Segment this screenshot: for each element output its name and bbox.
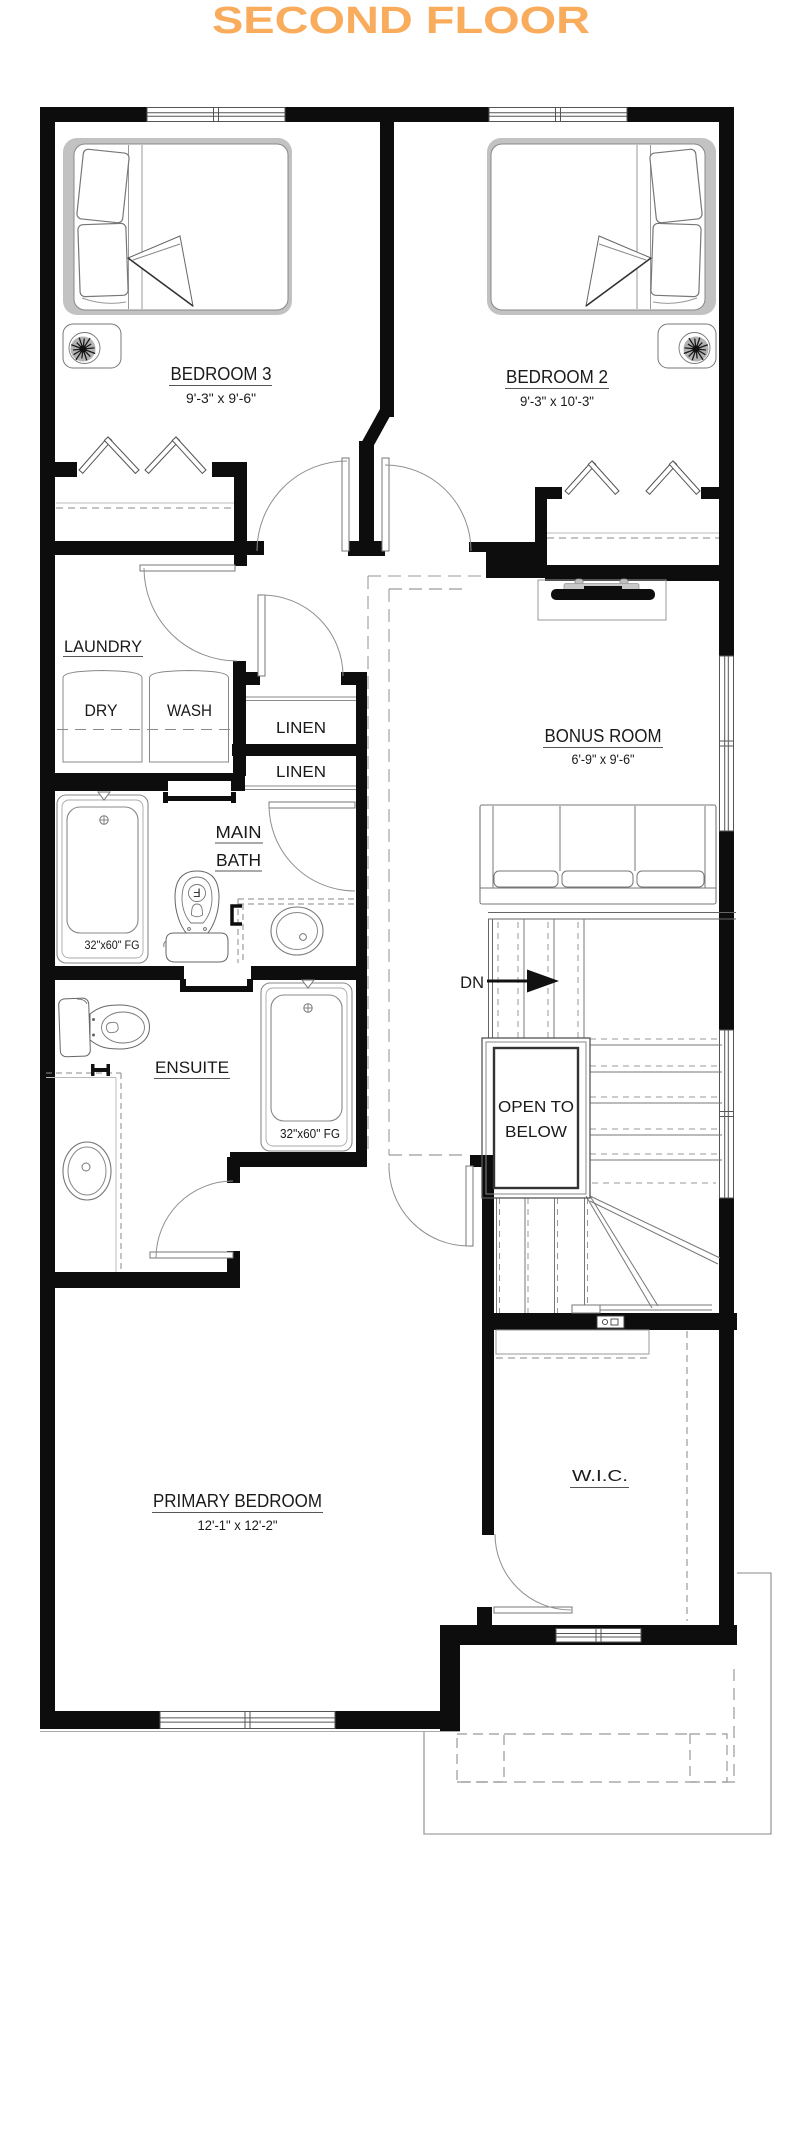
svg-text:9'-3" x 10'-3": 9'-3" x 10'-3" — [520, 394, 594, 409]
svg-text:BONUS ROOM: BONUS ROOM — [545, 726, 662, 746]
svg-text:BEDROOM 3: BEDROOM 3 — [171, 364, 272, 384]
svg-text:32"x60" FG: 32"x60" FG — [280, 1127, 340, 1141]
svg-text:OPEN TO: OPEN TO — [498, 1099, 574, 1116]
svg-text:LINEN: LINEN — [276, 764, 326, 781]
svg-text:DN: DN — [460, 974, 484, 992]
svg-text:DRY: DRY — [85, 702, 118, 720]
svg-text:WASH: WASH — [167, 702, 212, 720]
svg-text:BEDROOM 2: BEDROOM 2 — [506, 367, 608, 387]
svg-text:6'-9" x 9'-6": 6'-9" x 9'-6" — [572, 751, 635, 767]
svg-text:LINEN: LINEN — [276, 720, 326, 737]
svg-text:PRIMARY BEDROOM: PRIMARY BEDROOM — [153, 1491, 322, 1511]
svg-text:SECOND FLOOR: SECOND FLOOR — [212, 0, 590, 42]
svg-text:32"x60" FG: 32"x60" FG — [85, 938, 140, 952]
svg-text:12'-1" x 12'-2": 12'-1" x 12'-2" — [198, 1517, 278, 1533]
svg-text:W.I.C.: W.I.C. — [572, 1468, 628, 1485]
svg-text:BELOW: BELOW — [505, 1124, 567, 1141]
svg-text:LAUNDRY: LAUNDRY — [64, 638, 142, 656]
svg-text:BATH: BATH — [216, 850, 261, 870]
svg-text:ENSUITE: ENSUITE — [155, 1059, 229, 1077]
svg-text:9'-3" x 9'-6": 9'-3" x 9'-6" — [186, 391, 256, 406]
svg-text:MAIN: MAIN — [216, 822, 262, 842]
svg-text:F: F — [193, 886, 200, 900]
